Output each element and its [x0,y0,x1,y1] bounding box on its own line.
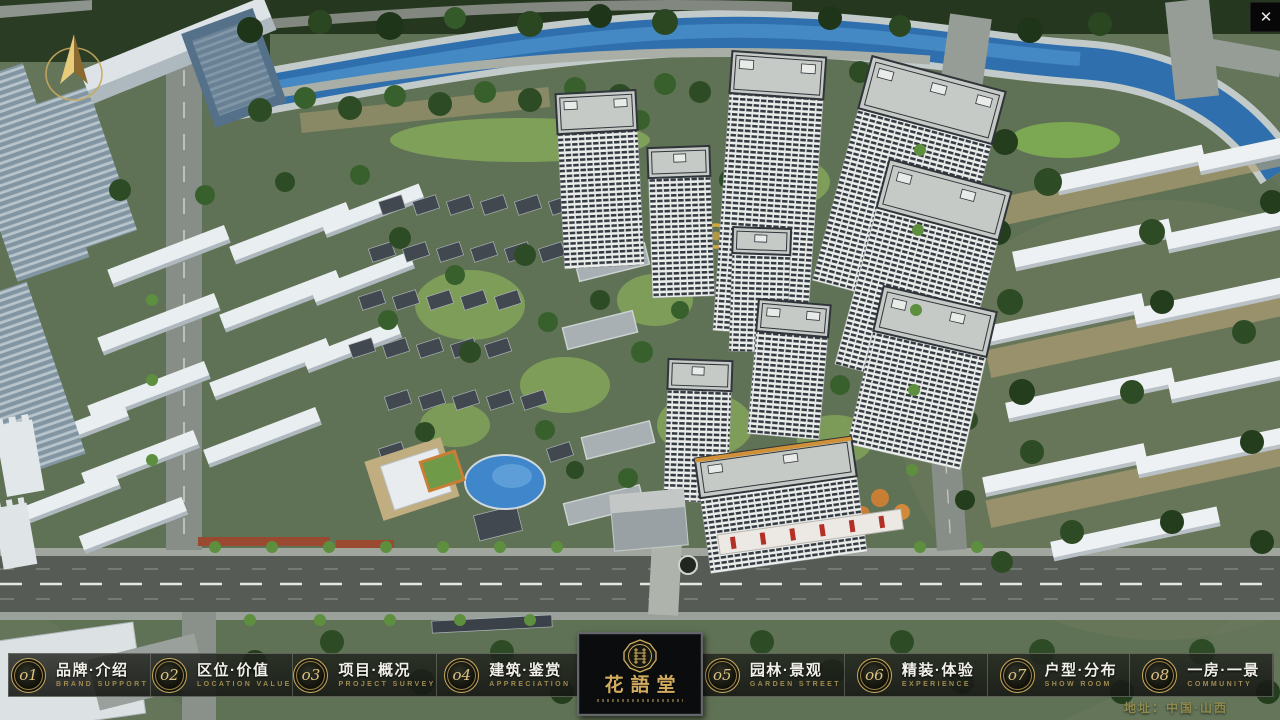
item-number-badge: o6 [857,658,892,693]
nav-label-zh: 建筑·鉴赏 [489,662,562,679]
nav-label-en: COMMUNITY [1187,681,1252,688]
nav-item-brand[interactable]: o1 品牌·介绍 BRAND SUPPORT [9,654,151,696]
nav-label-en: EXPERIENCE [902,681,971,688]
nav-label-en: APPRECIATION [489,681,570,688]
tower [647,146,714,298]
nav-label-en: LOCATION VALUE [197,681,292,688]
logo-tagline-strip [597,699,683,702]
close-icon: ✕ [1260,10,1273,25]
item-number-badge: o2 [152,658,187,693]
nav-right-group: o5 园林·景观 GARDEN STREET o6 精装·体验 EXPERIEN… [702,653,1274,697]
nav-label-zh: 项目·概况 [338,662,411,679]
nav-label-zh: 园林·景观 [750,662,823,679]
entry-fountain [679,556,697,574]
seal-emblem-icon [623,639,657,673]
nav-item-floorplans[interactable]: o7 户型·分布 SHOW ROOM [988,654,1131,696]
nav-label-en: GARDEN STREET [750,681,841,688]
nav-label-zh: 精装·体验 [902,662,975,679]
item-number-badge: o8 [1142,658,1177,693]
nav-item-interior[interactable]: o6 精装·体验 EXPERIENCE [845,654,988,696]
nav-label-zh: 区位·价值 [197,662,270,679]
nav-item-garden[interactable]: o5 园林·景观 GARDEN STREET [702,654,845,696]
nav-item-views[interactable]: o8 一房·一景 COMMUNITY [1130,654,1273,696]
address-text: 地址：中国·山西 [1124,699,1228,716]
masterplan-render [0,0,1280,720]
nav-label-zh: 品牌·介绍 [56,662,129,679]
item-number-badge: o1 [11,658,46,693]
item-number-badge: o7 [1000,658,1035,693]
project-name: 花語堂 [604,674,682,696]
tower [747,299,830,440]
nav-label-en: PROJECT SURVEY [338,681,435,688]
item-number-badge: o5 [705,658,740,693]
project-logo[interactable]: 花語堂 [577,632,703,716]
nav-item-architecture[interactable]: o4 建筑·鉴赏 APPRECIATION [437,654,578,696]
nav-item-project[interactable]: o3 项目·概况 PROJECT SURVEY [293,654,436,696]
compass-north-icon [36,28,112,108]
item-number-badge: o3 [293,658,328,693]
tower [556,90,645,269]
nav-label-en: BRAND SUPPORT [56,681,148,688]
nav-left-group: o1 品牌·介绍 BRAND SUPPORT o2 区位·价值 LOCATION… [8,653,578,697]
nav-label-zh: 一房·一景 [1187,662,1260,679]
nav-label-en: SHOW ROOM [1045,681,1112,688]
item-number-badge: o4 [444,658,479,693]
close-button[interactable]: ✕ [1250,2,1280,32]
nav-label-zh: 户型·分布 [1045,662,1118,679]
nav-item-location[interactable]: o2 区位·价值 LOCATION VALUE [151,654,293,696]
